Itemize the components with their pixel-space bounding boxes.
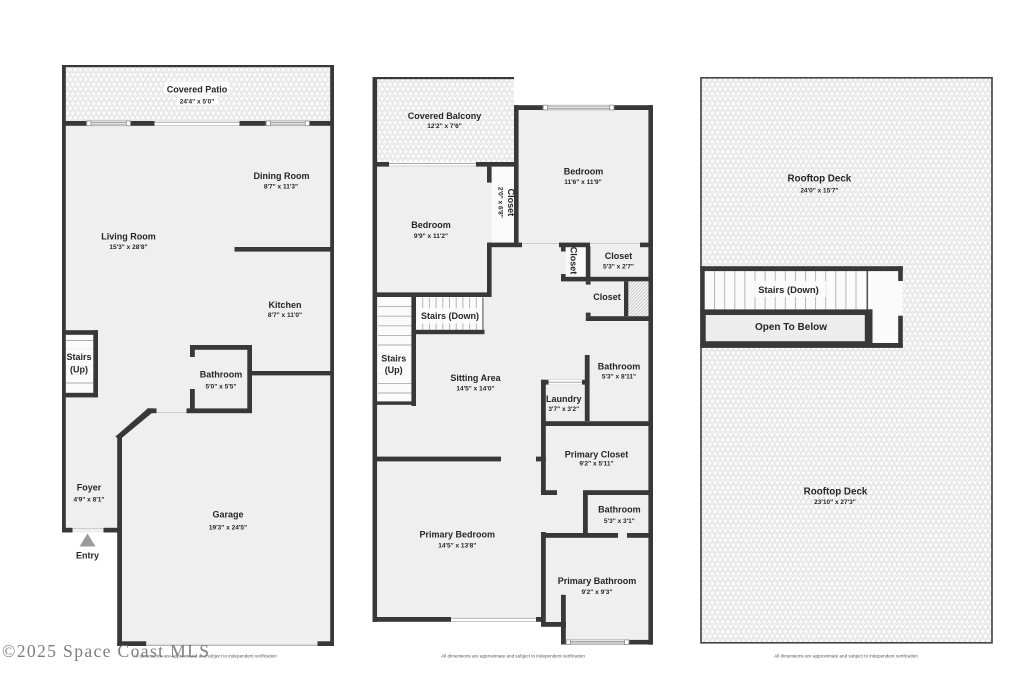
svg-text:5'0" x 5'5": 5'0" x 5'5"	[206, 384, 237, 391]
svg-text:Covered Patio: Covered Patio	[167, 84, 228, 94]
svg-text:Covered Balcony: Covered Balcony	[408, 111, 482, 121]
svg-text:Closet: Closet	[593, 292, 621, 302]
svg-text:Kitchen: Kitchen	[268, 300, 301, 310]
svg-text:Closet: Closet	[569, 247, 579, 275]
svg-text:All dimensions are approximate: All dimensions are approximate and subje…	[441, 654, 585, 659]
svg-text:2'0" x 6'8": 2'0" x 6'8"	[496, 187, 503, 218]
svg-text:Bathroom: Bathroom	[200, 369, 243, 379]
svg-text:8'7" x 11'0": 8'7" x 11'0"	[268, 312, 302, 319]
svg-text:Garage: Garage	[212, 509, 243, 519]
svg-text:All dimensions are approximate: All dimensions are approximate and subje…	[774, 654, 918, 659]
svg-text:©2025 Space Coast MLS: ©2025 Space Coast MLS	[2, 641, 210, 661]
svg-text:Entry: Entry	[76, 550, 99, 560]
svg-text:14'5" x 14'0": 14'5" x 14'0"	[456, 385, 494, 392]
svg-text:8'7" x 11'3": 8'7" x 11'3"	[264, 183, 298, 190]
svg-text:12'2" x 7'6": 12'2" x 7'6"	[427, 123, 462, 130]
svg-text:15'3" x 28'8": 15'3" x 28'8"	[109, 244, 147, 251]
svg-text:Bathroom: Bathroom	[598, 361, 641, 371]
svg-text:Primary Bathroom: Primary Bathroom	[558, 576, 637, 586]
svg-text:23'10" x 27'3": 23'10" x 27'3"	[814, 499, 856, 506]
svg-text:9'2" x 5'11": 9'2" x 5'11"	[579, 461, 613, 468]
svg-text:Living Room: Living Room	[101, 232, 156, 242]
svg-text:5'3" x 8'11": 5'3" x 8'11"	[602, 374, 636, 381]
svg-text:Closet: Closet	[506, 189, 516, 217]
svg-text:Dining Room: Dining Room	[254, 171, 310, 181]
svg-text:Closet: Closet	[605, 251, 633, 261]
svg-text:Stairs (Down): Stairs (Down)	[758, 284, 818, 295]
svg-text:Primary Closet: Primary Closet	[565, 449, 629, 459]
svg-text:3'7" x 3'2": 3'7" x 3'2"	[548, 406, 579, 413]
svg-text:11'6" x 11'9": 11'6" x 11'9"	[564, 179, 601, 186]
svg-text:Bedroom: Bedroom	[411, 220, 451, 230]
svg-text:4'9" x 8'1": 4'9" x 8'1"	[74, 497, 105, 504]
svg-text:(Up): (Up)	[385, 365, 403, 375]
svg-text:Foyer: Foyer	[77, 482, 102, 492]
svg-text:9'2" x 9'3": 9'2" x 9'3"	[582, 589, 613, 596]
svg-text:Open To Below: Open To Below	[755, 322, 827, 333]
svg-text:Rooftop Deck: Rooftop Deck	[804, 486, 868, 497]
svg-text:Laundry: Laundry	[546, 394, 582, 404]
svg-text:Bedroom: Bedroom	[564, 166, 604, 176]
svg-text:9'9" x 11'2": 9'9" x 11'2"	[414, 233, 448, 240]
svg-text:(Up): (Up)	[70, 364, 88, 374]
svg-text:5'3" x 2'7": 5'3" x 2'7"	[603, 263, 634, 270]
svg-text:Primary Bedroom: Primary Bedroom	[420, 529, 496, 539]
svg-text:Bathroom: Bathroom	[598, 504, 641, 514]
svg-text:Rooftop Deck: Rooftop Deck	[788, 174, 852, 185]
svg-text:5'3" x 3'1": 5'3" x 3'1"	[604, 518, 635, 525]
svg-text:19'3" x 24'5": 19'3" x 24'5"	[209, 525, 247, 532]
svg-text:24'0" x 15'7": 24'0" x 15'7"	[800, 187, 838, 194]
svg-text:Sitting Area: Sitting Area	[450, 373, 501, 383]
svg-text:24'4" x 5'0": 24'4" x 5'0"	[180, 99, 215, 106]
svg-text:14'5" x 13'8": 14'5" x 13'8"	[438, 543, 476, 550]
svg-text:Stairs (Down): Stairs (Down)	[421, 311, 479, 321]
svg-text:Stairs: Stairs	[381, 353, 406, 363]
svg-text:Stairs: Stairs	[66, 352, 91, 362]
